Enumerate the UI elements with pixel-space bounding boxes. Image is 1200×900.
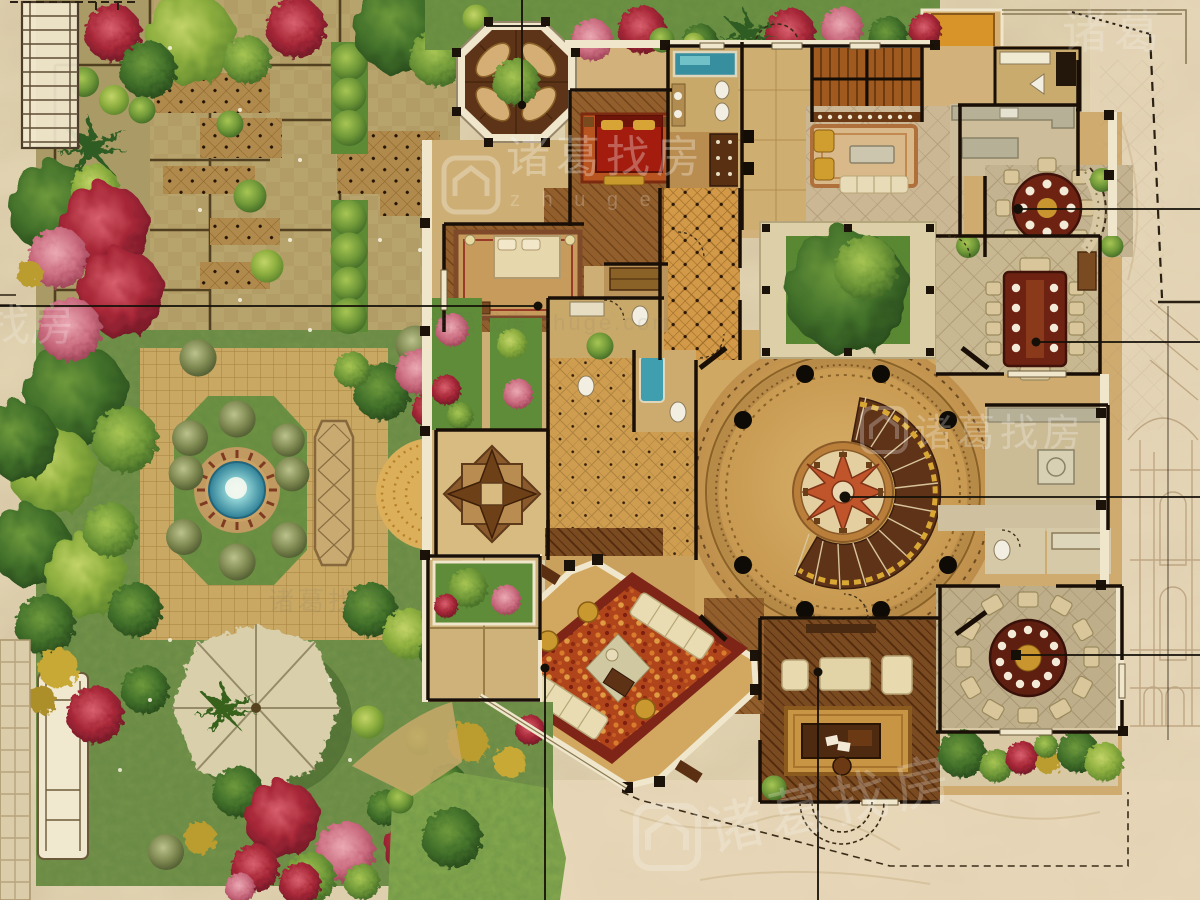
svg-text:找房: 找房 (0, 301, 74, 350)
svg-text:诸葛: 诸葛 (1062, 6, 1166, 58)
svg-text:诸葛找房: 诸葛找房 (268, 586, 388, 616)
svg-text:诸葛找房 zhuge.com: 诸葛找房 zhuge.com (430, 310, 674, 335)
svg-text:z h u g e: z h u g e (510, 189, 659, 211)
svg-text:诸葛找房: 诸葛找房 (914, 413, 1086, 455)
svg-text:诸葛找房: 诸葛找房 (506, 133, 706, 182)
